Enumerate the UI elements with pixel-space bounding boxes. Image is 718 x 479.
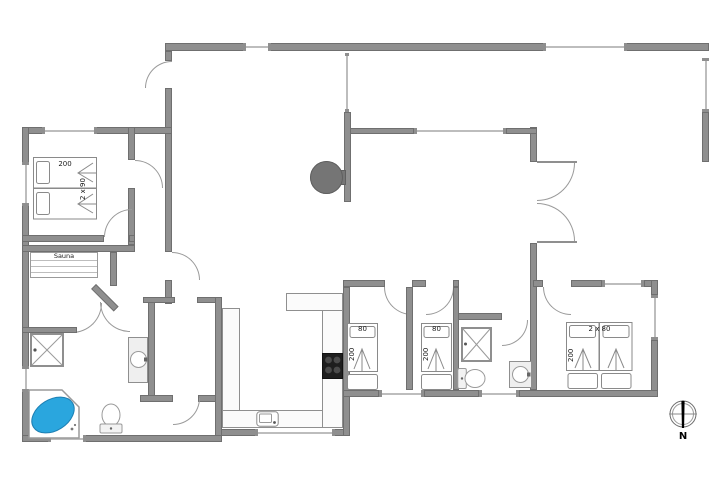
door-leaf: [537, 241, 577, 243]
door-arc: [537, 203, 575, 241]
window: [543, 43, 627, 51]
door-arc: [145, 61, 172, 88]
door-arc: [502, 320, 528, 346]
wall: [165, 51, 172, 61]
window: [602, 280, 644, 287]
wall: [343, 280, 385, 287]
window: [479, 390, 519, 397]
wall: [571, 280, 602, 287]
bed-width-label: 80: [347, 325, 378, 333]
wall: [128, 127, 135, 160]
door-arc: [426, 287, 454, 315]
wall: [343, 390, 379, 397]
window: [379, 390, 424, 397]
shower-cabin-west: [30, 333, 64, 367]
window: [243, 43, 271, 51]
window: [345, 53, 349, 112]
toilet-west: [98, 403, 124, 435]
wall: [143, 297, 175, 303]
door-arc: [537, 163, 575, 201]
wall: [651, 340, 658, 397]
wall: [533, 280, 543, 287]
kitchen-sink: [256, 411, 279, 427]
wall: [22, 235, 104, 242]
wall: [406, 287, 413, 390]
wood-stove-icon: [310, 161, 343, 194]
sauna-label: Sauna: [30, 253, 98, 260]
wall: [519, 390, 658, 397]
door-arc: [135, 160, 163, 188]
door-arc: [172, 252, 200, 280]
kitchen-stove: [322, 353, 343, 379]
bed-width-label: 80: [421, 325, 452, 333]
wall: [344, 112, 351, 202]
compass-rose: N: [662, 397, 704, 441]
wall: [458, 313, 502, 320]
bed-width-label: 2 x 80: [566, 325, 633, 333]
bed-width-label: 2 x 90: [80, 171, 87, 207]
bed-length-label: 200: [349, 341, 356, 367]
wall: [702, 112, 709, 162]
door-arc: [100, 302, 130, 332]
washbasin-west: [129, 350, 148, 369]
wall: [453, 280, 459, 287]
window: [42, 127, 97, 134]
wall: [110, 252, 117, 286]
window: [22, 162, 29, 206]
door-arc: [173, 398, 200, 425]
door-arc: [104, 209, 132, 237]
wall: [412, 280, 426, 287]
corner-bathtub: [28, 389, 80, 439]
kitchen-counter: [286, 293, 343, 311]
wall: [215, 297, 222, 436]
shower-cabin-east: [461, 327, 492, 362]
door-arc: [543, 287, 571, 315]
wall: [424, 390, 479, 397]
compass-north-label: N: [679, 431, 687, 441]
window: [702, 58, 709, 112]
bed-length-label: 200: [423, 341, 430, 367]
wall: [506, 128, 537, 134]
window: [255, 429, 335, 436]
washbasin-east: [511, 365, 531, 384]
toilet-east: [457, 367, 486, 390]
window: [414, 128, 506, 134]
floor-plan: 200 2 x 90 Sauna: [0, 0, 718, 479]
wall: [165, 88, 172, 252]
wall: [22, 245, 135, 252]
wall: [140, 395, 173, 402]
wall: [651, 280, 658, 295]
window: [651, 295, 658, 340]
bed-length-label: 200: [48, 160, 82, 168]
wall: [148, 302, 155, 397]
wall: [344, 128, 414, 134]
bed-length-label: 200: [568, 341, 575, 369]
